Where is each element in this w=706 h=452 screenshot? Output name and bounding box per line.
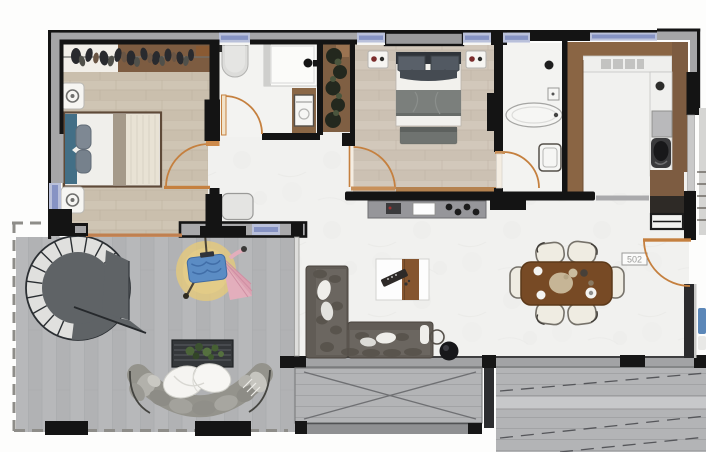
svg-text:502: 502 — [627, 255, 642, 265]
